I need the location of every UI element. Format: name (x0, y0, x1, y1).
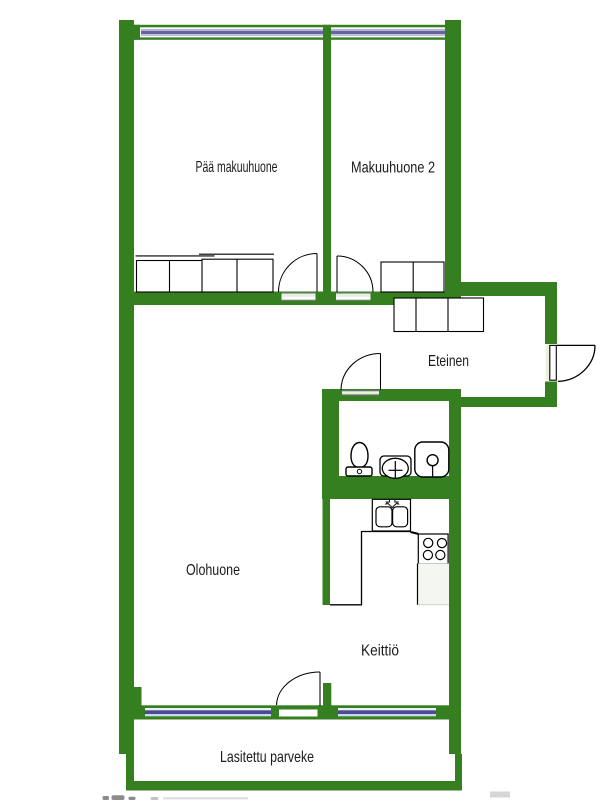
svg-text:Makuuhuone 2: Makuuhuone 2 (351, 160, 435, 177)
svg-text:Olohuone: Olohuone (186, 562, 240, 579)
svg-text:Pää makuuhuone: Pää makuuhuone (196, 159, 278, 176)
svg-text:Eteinen: Eteinen (428, 353, 469, 370)
svg-text:Keittiö: Keittiö (361, 643, 399, 660)
svg-text:Lasitettu parveke: Lasitettu parveke (220, 749, 314, 766)
